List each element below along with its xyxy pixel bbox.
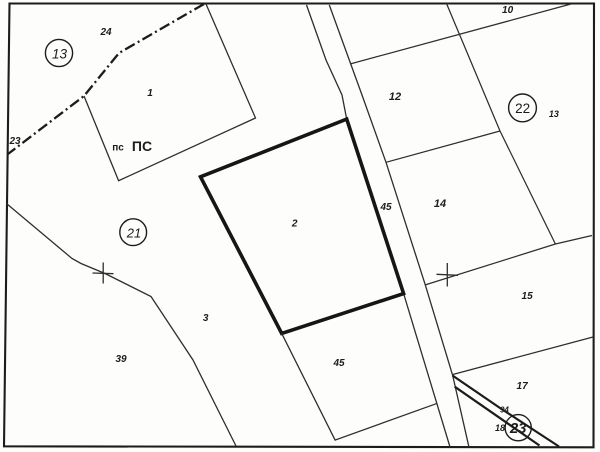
svg-text:21: 21 (126, 226, 141, 241)
svg-text:3: 3 (203, 313, 209, 324)
svg-text:24: 24 (99, 27, 112, 38)
svg-text:45: 45 (332, 358, 345, 369)
svg-text:12: 12 (389, 91, 401, 103)
svg-text:2: 2 (291, 219, 298, 230)
svg-text:15: 15 (522, 291, 534, 302)
svg-text:45: 45 (379, 202, 392, 213)
svg-text:23: 23 (509, 420, 527, 437)
svg-text:13: 13 (52, 46, 68, 61)
svg-text:14: 14 (434, 198, 446, 210)
svg-text:17: 17 (517, 381, 529, 392)
svg-text:13: 13 (549, 109, 559, 119)
svg-text:пс: пс (112, 143, 124, 154)
svg-text:10: 10 (502, 5, 514, 16)
svg-text:22: 22 (515, 101, 530, 116)
svg-text:18: 18 (495, 423, 505, 433)
svg-text:1: 1 (147, 88, 153, 99)
svg-text:ПС: ПС (132, 138, 152, 154)
svg-text:94: 94 (500, 405, 509, 414)
svg-text:23: 23 (8, 136, 21, 147)
svg-text:39: 39 (115, 354, 127, 365)
